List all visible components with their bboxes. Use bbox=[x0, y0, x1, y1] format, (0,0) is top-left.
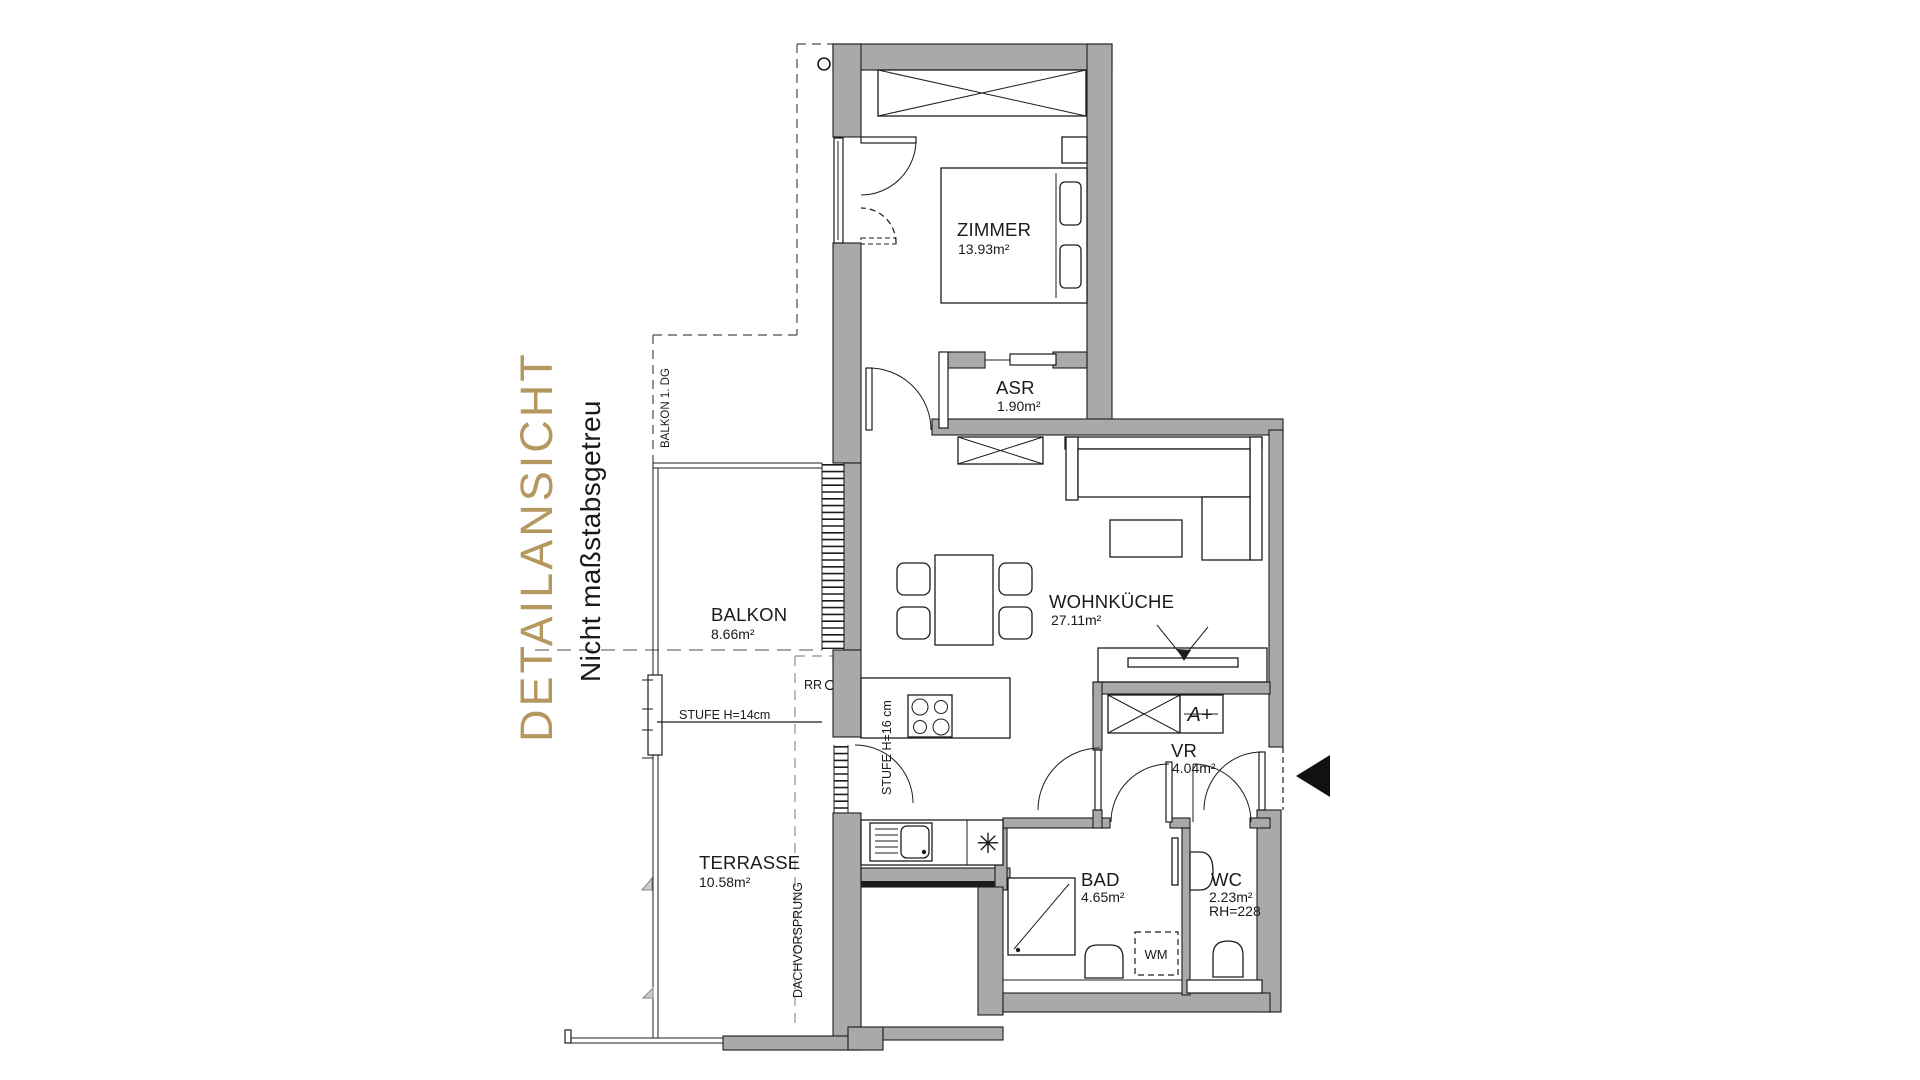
survey-point-icon bbox=[818, 58, 830, 70]
sofa-seat-top bbox=[1078, 449, 1250, 497]
dishwasher-icon: ✳ bbox=[976, 828, 999, 859]
living-furniture bbox=[897, 437, 1267, 682]
label-vr-area: 4.04m² bbox=[1172, 760, 1216, 776]
washbasin-wc bbox=[1190, 852, 1213, 890]
label-zimmer: ZIMMER bbox=[957, 219, 1031, 240]
sofa-armrest bbox=[1066, 437, 1078, 500]
label-stufe-14: STUFE H=14cm bbox=[679, 708, 770, 722]
terrace-edge-post bbox=[565, 1030, 571, 1043]
label-wc-height: RH=228 bbox=[1209, 903, 1261, 919]
label-wm: WM bbox=[1144, 947, 1167, 962]
page-subtitle: Nicht maßstabsgetreu bbox=[575, 400, 606, 682]
chair bbox=[897, 563, 930, 595]
sofa-back-top bbox=[1065, 437, 1262, 449]
zimmer-furniture bbox=[878, 70, 1087, 464]
balcony-post bbox=[648, 675, 662, 755]
label-bad-area: 4.65m² bbox=[1081, 889, 1125, 905]
label-boiler: A+ bbox=[1186, 704, 1212, 726]
chair bbox=[897, 607, 930, 639]
label-asr: ASR bbox=[996, 377, 1035, 398]
entrance-arrow-icon bbox=[1296, 755, 1330, 797]
sideboard-inner bbox=[1128, 658, 1238, 667]
label-wohnkueche-area: 27.11m² bbox=[1051, 612, 1102, 628]
label-terrasse-area: 10.58m² bbox=[699, 874, 751, 890]
label-dachvorsprung: DACHVORSPRUNG bbox=[791, 882, 805, 998]
coffee-table bbox=[1110, 520, 1182, 557]
sofa-seat-right bbox=[1202, 497, 1250, 560]
floor-plan-page: DETAILANSICHT Nicht maßstabsgetreu ZIMME… bbox=[0, 0, 1920, 1080]
drainage-mark-icon bbox=[642, 878, 652, 890]
label-vr: VR bbox=[1171, 740, 1197, 761]
label-balkon: BALKON bbox=[711, 604, 787, 625]
label-bad: BAD bbox=[1081, 869, 1120, 890]
label-wohnkueche: WOHNKÜCHE bbox=[1049, 591, 1174, 612]
floor-plan-svg: DETAILANSICHT Nicht maßstabsgetreu ZIMME… bbox=[0, 0, 1920, 1080]
bathroom-fixtures bbox=[1008, 838, 1243, 978]
page-title: DETAILANSICHT bbox=[511, 351, 562, 742]
label-terrasse: TERRASSE bbox=[699, 852, 800, 873]
pillow bbox=[1060, 245, 1081, 288]
toilet-wc bbox=[1213, 941, 1243, 977]
sofa-back-right bbox=[1250, 437, 1262, 560]
label-wc: WC bbox=[1211, 869, 1242, 890]
radiator bbox=[1172, 838, 1178, 885]
balcony-terrace-outline bbox=[565, 463, 848, 1043]
chair bbox=[999, 607, 1032, 639]
drainage-mark-icon bbox=[643, 988, 653, 998]
label-balkon-1dg: BALKON 1. DG bbox=[660, 368, 672, 448]
chair bbox=[999, 563, 1032, 595]
toilet-bad bbox=[1085, 945, 1123, 978]
pillow bbox=[1060, 182, 1081, 225]
label-rr: RR bbox=[804, 678, 822, 692]
label-zimmer-area: 13.93m² bbox=[958, 241, 1010, 257]
dining-table bbox=[935, 555, 993, 645]
label-balkon-area: 8.66m² bbox=[711, 626, 755, 642]
label-stufe-16: STUFE H=16 cm bbox=[880, 700, 894, 795]
nightstand bbox=[1062, 137, 1087, 163]
entrance-marker bbox=[1296, 755, 1330, 797]
label-asr-area: 1.90m² bbox=[997, 398, 1041, 414]
